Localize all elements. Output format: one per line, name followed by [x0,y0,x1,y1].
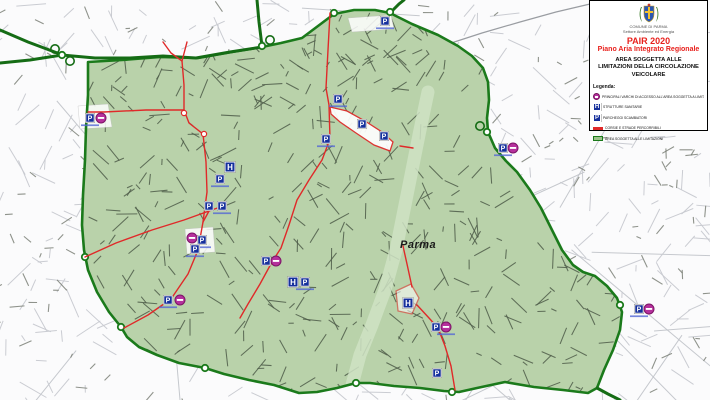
marker-caption [211,185,229,187]
no-entry-icon [175,295,185,305]
legend-subtitle: Piano Aria Integrato Regionale [593,46,704,54]
road-junction [353,380,359,386]
map-viewport: PPPPPPHPPPPPPPHPHPPPPParma COMUNE DI PAR… [0,0,710,400]
legend-item-label: AREA SOGGETTA ALLE LIMITAZIONI [605,137,663,141]
legend-heading: AREA SOGGETTA ALLE LIMITAZIONI DELLA CIR… [593,57,704,80]
road-junction [484,129,490,135]
route-junction [181,110,186,115]
comune-di-parma-crest-icon [638,3,660,25]
svg-text:P: P [360,122,365,129]
legend-item-area: AREA SOGGETTA ALLE LIMITAZIONI [593,135,704,143]
legend-label: Legenda: [593,84,704,90]
marker-caption [437,333,455,335]
restricted-area-swatch-icon [593,136,603,141]
road-junction [259,43,265,49]
legend-heading-line3: VEICOLARE [593,72,704,80]
no-entry-icon [593,93,600,100]
marker-caption [376,27,394,29]
legend-item-label: PRINCIPALI VARCHI DI ACCESSO ALL'AREA SO… [602,95,704,99]
marker-caption [186,255,204,257]
svg-text:H: H [290,278,296,287]
road-junction [202,365,208,371]
legend-item-strutture-sanitarie: H STRUTTURE SANITARIE [593,103,704,111]
hospital-icon: H [225,162,236,173]
svg-text:P: P [166,298,171,305]
marker-caption [494,154,512,156]
road-junction [118,324,124,330]
legend-item-label: CORSIE E STRADE PERCORRIBILI [605,126,661,130]
marker-caption [81,124,99,126]
legend-item-varchi: PRINCIPALI VARCHI DI ACCESSO ALL'AREA SO… [593,93,704,101]
marker-caption [630,315,648,317]
road-junction [449,389,455,395]
hospital-icon: H [403,298,414,309]
road-junction [387,9,393,15]
no-entry-icon [96,113,106,123]
hospital-icon: H [288,277,299,288]
marker-caption [159,306,177,308]
parking-icon: P [357,119,367,129]
svg-text:P: P [218,177,223,184]
no-entry-icon [644,304,654,314]
parking-icon: P [593,114,601,122]
legend-item-label: PARCHEGGI SCAMBIATORI [603,116,647,120]
legend-item-corsie: CORSIE E STRADE PERCORRIBILI [593,124,704,132]
city-label: Parma [400,239,436,251]
route-junction [201,131,206,136]
svg-text:P: P [382,134,387,141]
marker-caption [317,145,335,147]
hospital-icon: H [593,103,601,111]
svg-text:P: P [193,247,198,254]
marker-caption [296,288,314,290]
svg-text:P: P [264,259,269,266]
svg-text:P: P [88,116,93,123]
svg-text:P: P [501,146,506,153]
no-entry-icon [187,233,197,243]
no-entry-icon [508,143,518,153]
parking-icon: P [261,256,271,266]
parking-icon: P [431,322,441,332]
marker-caption [329,105,347,107]
road-junction [331,10,337,16]
legend-heading-line2: LIMITAZIONI DELLA CIRCOLAZIONE [593,64,704,72]
legend-item-label: STRUTTURE SANITARIE [603,105,642,109]
svg-text:P: P [336,97,341,104]
svg-text:P: P [207,204,212,211]
legend-item-parcheggi: P PARCHEGGI SCAMBIATORI [593,114,704,122]
road-junction [59,52,65,58]
svg-text:P: P [637,307,642,314]
marker-caption [213,212,231,214]
svg-text:P: P [303,280,308,287]
legend-org-line2: Settore Ambiente ed Energia [593,30,704,35]
svg-text:P: P [220,204,225,211]
no-entry-icon [271,256,281,266]
legend-title: PAIR 2020 [593,37,704,46]
svg-text:H: H [227,163,233,172]
parking-icon: P [204,201,214,211]
svg-text:H: H [405,299,411,308]
road-junction [617,302,623,308]
svg-text:P: P [200,238,205,245]
svg-text:P: P [434,325,439,332]
legend-heading-line1: AREA SOGGETTA ALLE [593,57,704,65]
svg-text:P: P [435,371,440,378]
legend-panel: COMUNE DI PARMA Settore Ambiente ed Ener… [589,0,708,131]
svg-text:P: P [324,137,329,144]
parking-icon: P [379,131,389,141]
svg-text:P: P [383,19,388,26]
parking-icon: P [432,368,442,378]
red-route-swatch-icon [593,127,603,130]
